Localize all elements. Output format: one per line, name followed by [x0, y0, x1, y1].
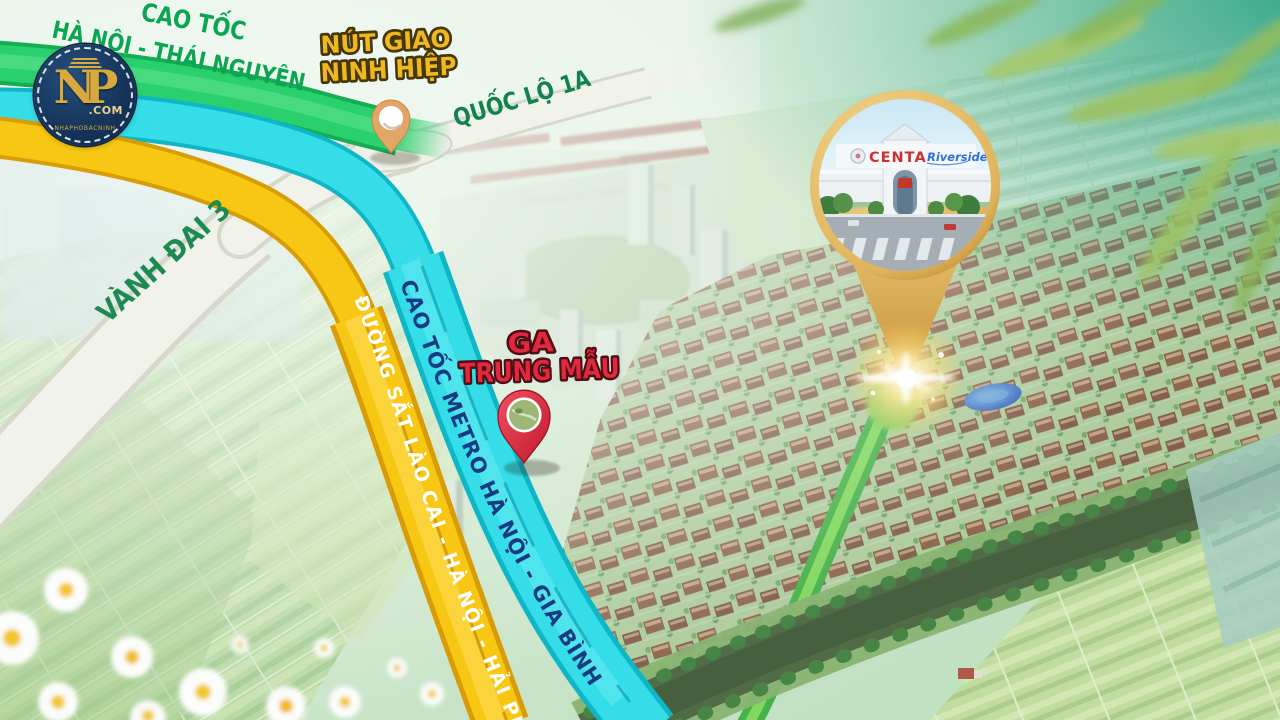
interchange-label: NÚT GIAO NINH HIỆP: [320, 23, 457, 88]
np-logo-tld: .COM: [88, 104, 123, 117]
location-map: ĐƯỜNG SẮT LÀO CAI - HÀ NỘI - HẢI PHÒNG C…: [0, 0, 1280, 720]
gate-brand-suffix-text: Riverside: [927, 150, 988, 164]
np-logo-subtext: NHAPHOBACNINH: [34, 125, 136, 132]
np-logo-monogram: NP: [34, 64, 126, 110]
np-logo-emblem-icon: [67, 58, 103, 70]
gate-brand-text: CENTA: [869, 150, 927, 166]
glow-burst: [848, 320, 964, 436]
np-logo: NP .COM NHAPHOBACNINH: [34, 44, 136, 146]
